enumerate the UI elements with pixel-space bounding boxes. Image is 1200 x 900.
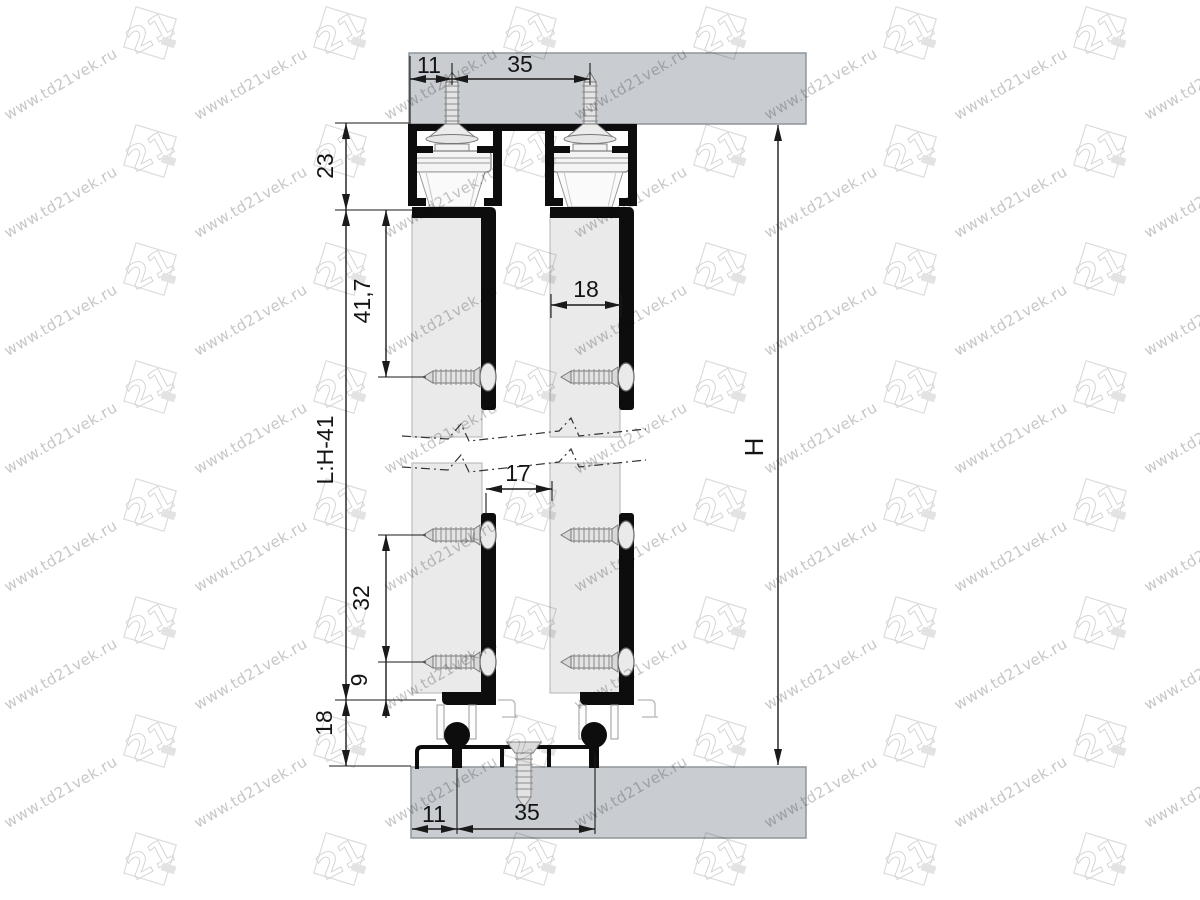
dim-opening-height: H bbox=[739, 438, 769, 457]
technical-drawing-page: 11 35 23 41,7 18 L:H-41 17 32 9 18 H 11 … bbox=[0, 0, 1200, 900]
dim-top-screw-spacing: 35 bbox=[507, 51, 533, 77]
dim-door-top-to-screw: 41,7 bbox=[349, 279, 375, 324]
dim-track-height: 23 bbox=[312, 153, 338, 179]
ceiling-panel bbox=[409, 53, 806, 124]
dim-top-edge-offset: 11 bbox=[417, 52, 441, 78]
dim-bottom-screw-offset: 9 bbox=[346, 674, 372, 687]
dim-door-gap: 17 bbox=[505, 460, 531, 486]
dim-bottom-guide-spacing: 35 bbox=[514, 799, 540, 825]
dim-door-thickness: 18 bbox=[573, 276, 599, 302]
dim-door-height-formula: L:H-41 bbox=[312, 415, 338, 484]
dim-bottom-clearance: 18 bbox=[311, 710, 337, 736]
sliding-door-cross-section: 11 35 23 41,7 18 L:H-41 17 32 9 18 H 11 … bbox=[0, 0, 1200, 900]
dim-bottom-edge-offset: 11 bbox=[422, 801, 446, 827]
left-door-panel bbox=[412, 214, 482, 693]
right-roller-carriage bbox=[552, 144, 629, 207]
left-roller-carriage bbox=[414, 144, 491, 207]
dim-bottom-screw-spacing: 32 bbox=[348, 585, 374, 611]
